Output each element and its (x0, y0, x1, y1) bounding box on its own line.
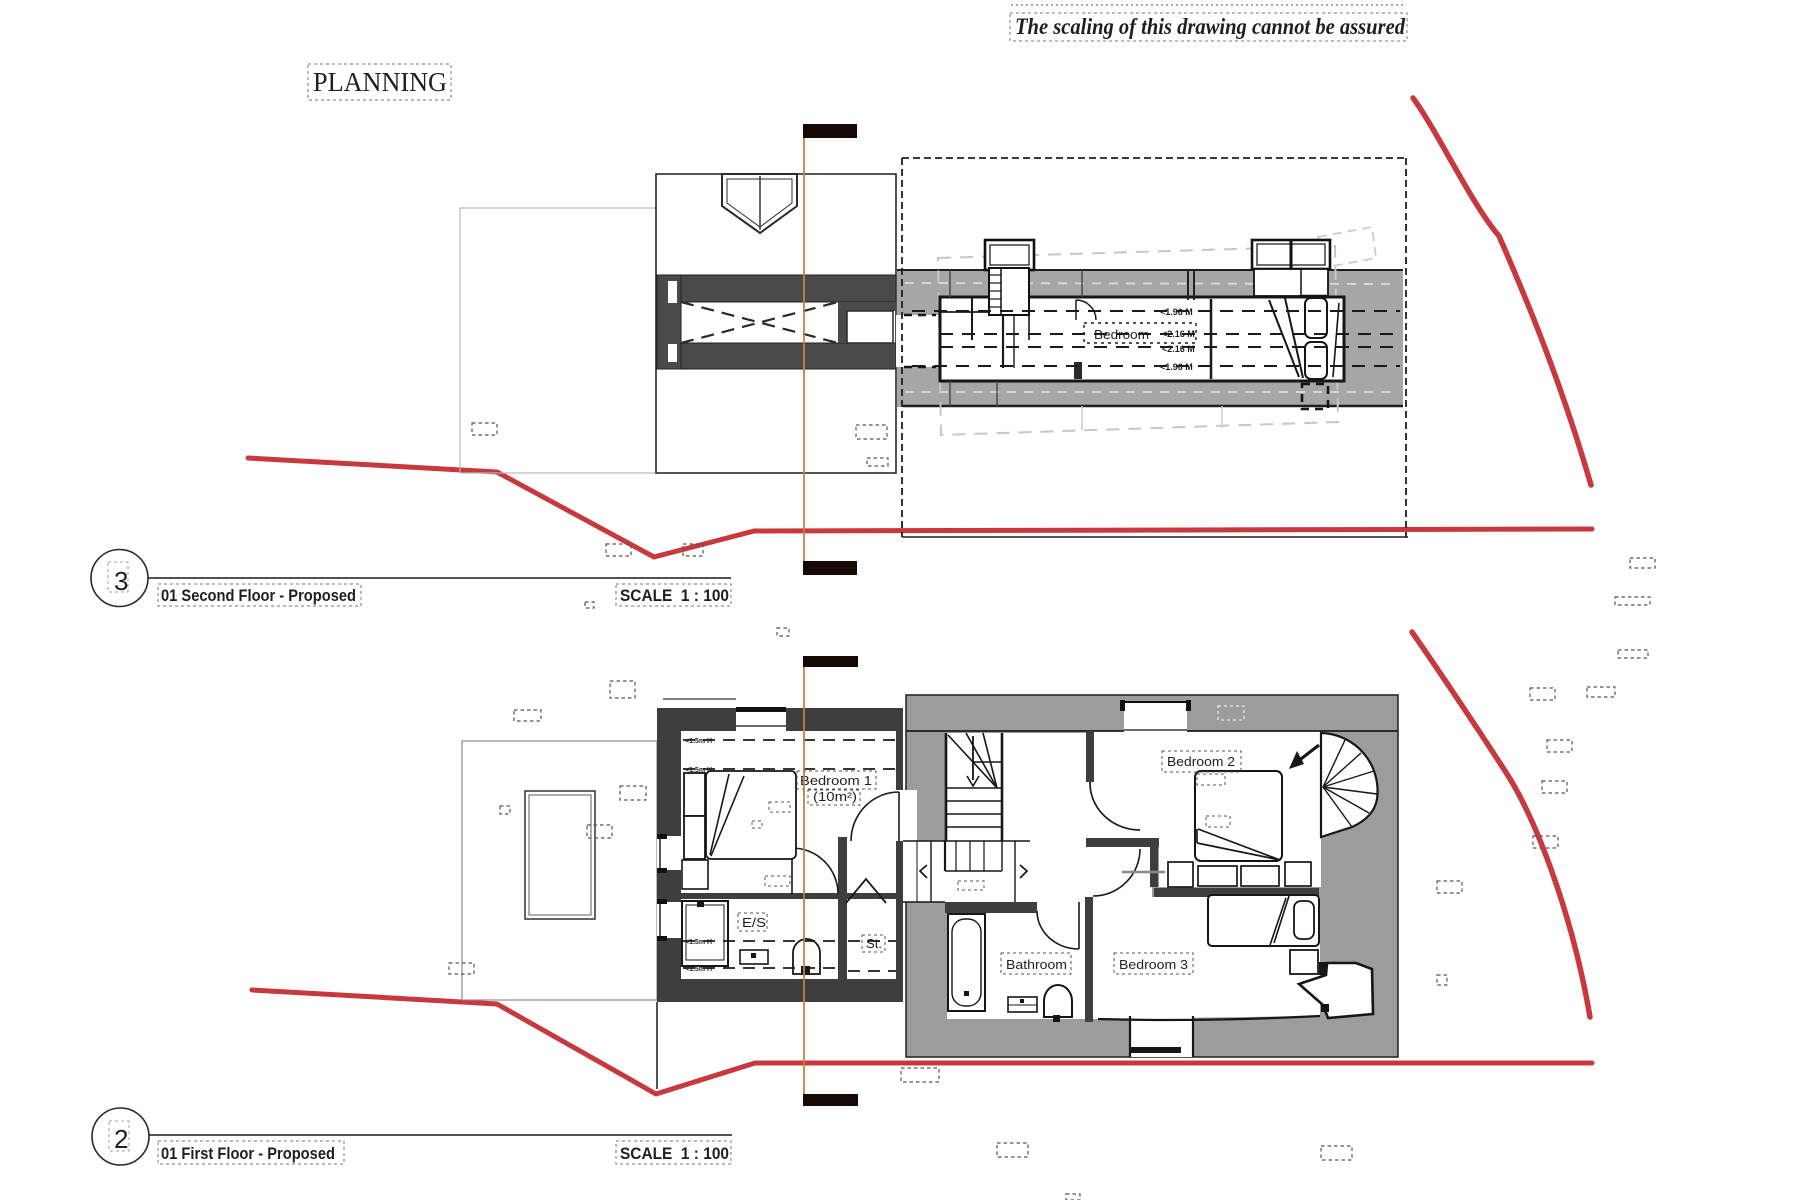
svg-text:<1.5m H: <1.5m H (685, 738, 712, 745)
svg-text:01 First Floor - Proposed: 01 First Floor - Proposed (161, 1144, 335, 1163)
svg-text:<2.16 M: <2.16 M (1162, 344, 1195, 354)
svg-text:Bedroom 2: Bedroom 2 (1167, 755, 1235, 769)
svg-text:St.: St. (866, 937, 882, 951)
svg-text:<1.96 M: <1.96 M (1160, 362, 1193, 372)
svg-text:<1.5m H: <1.5m H (685, 939, 712, 946)
svg-text:SCALE 1 : 100: SCALE 1 : 100 (620, 586, 729, 605)
svg-text:Bedroom: Bedroom (1094, 328, 1149, 342)
svg-text:3: 3 (114, 566, 128, 596)
svg-text:Bedroom 3: Bedroom 3 (1119, 958, 1188, 972)
svg-text:<1.5m H: <1.5m H (685, 966, 712, 973)
svg-text:Bathroom: Bathroom (1006, 958, 1067, 972)
svg-text:Bedroom 1: Bedroom 1 (800, 774, 872, 788)
svg-text:PLANNING: PLANNING (313, 67, 447, 97)
svg-text:01 Second Floor - Proposed: 01 Second Floor - Proposed (161, 586, 356, 605)
svg-text:<2.16 M: <2.16 M (1162, 329, 1195, 339)
svg-text:<1.96 M: <1.96 M (1160, 307, 1193, 317)
svg-text:(10m²): (10m²) (813, 790, 857, 804)
svg-text:E/S: E/S (742, 916, 766, 930)
svg-text:SCALE 1 : 100: SCALE 1 : 100 (620, 1144, 729, 1163)
svg-text:The scaling of this drawing ca: The scaling of this drawing cannot be as… (1015, 14, 1405, 39)
svg-text:<1.5m H: <1.5m H (685, 767, 712, 774)
svg-text:2: 2 (114, 1124, 128, 1154)
